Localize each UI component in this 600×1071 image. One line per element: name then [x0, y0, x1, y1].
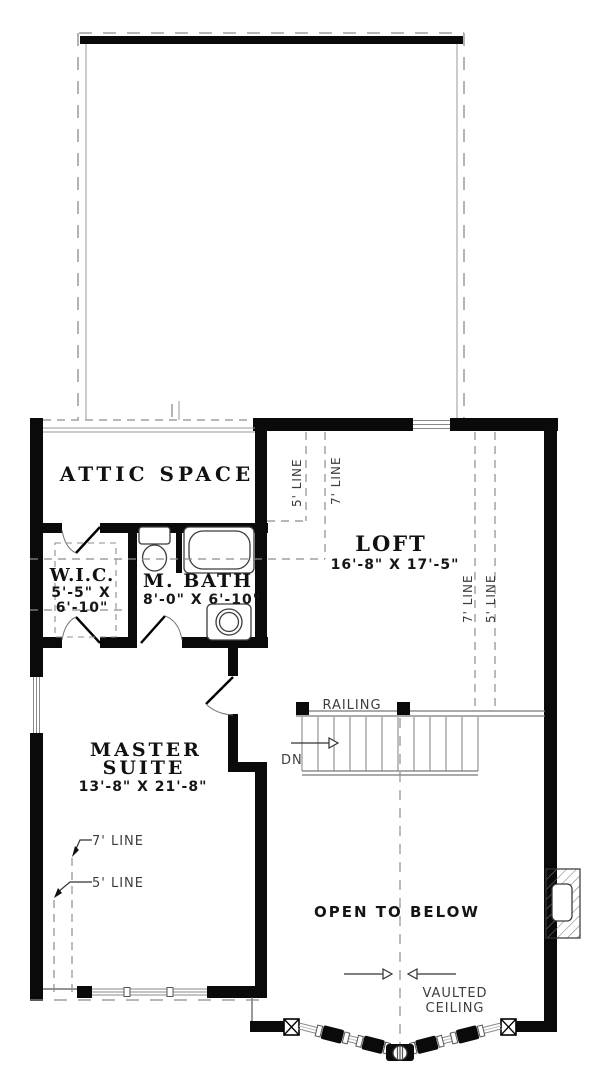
toilet-bowl: [143, 545, 167, 571]
fireplace: [546, 869, 580, 938]
five-line-label-loft-left: 5' LINE: [290, 458, 304, 507]
x-post: [284, 1019, 299, 1035]
prow-glass-left: [297, 1019, 394, 1056]
loft-top-window: [413, 418, 450, 431]
floor-plan-page: ATTIC SPACE W.I.C. 5'-5" X 6'-10" M. BAT…: [0, 0, 600, 1071]
bathtub-inner: [189, 531, 250, 569]
roof-outline: [78, 33, 464, 420]
exterior-walls: [30, 418, 558, 1032]
room-label-master-suite-2: SUITE: [103, 757, 186, 779]
room-label-loft: LOFT: [355, 531, 427, 556]
wic-dimensions-1: 5'-5" X: [51, 585, 111, 601]
seven-line-label-loft-left: 7' LINE: [329, 456, 343, 505]
seven-line-label-master: 7' LINE: [92, 834, 144, 849]
floor-plan-drawing: ATTIC SPACE W.I.C. 5'-5" X 6'-10" M. BAT…: [0, 0, 600, 1071]
master-bath-dimensions: 8'-0" X 6'-10": [143, 592, 261, 608]
railing-post: [397, 702, 410, 715]
interior-walls: [30, 418, 268, 997]
prow-center-post: [386, 1044, 414, 1061]
toilet-tank: [139, 527, 170, 544]
line-leaders: [54, 840, 92, 898]
room-label-wic: W.I.C.: [49, 565, 115, 586]
master-left-window: [30, 677, 43, 733]
vaulted-ceiling-label-1: VAULTED: [422, 986, 487, 1001]
seven-line-label-loft-right: 7' LINE: [461, 574, 475, 623]
x-post: [501, 1019, 516, 1035]
five-line-label-master: 5' LINE: [92, 876, 144, 891]
master-bottom-window: [92, 986, 207, 998]
down-label: DN: [281, 753, 303, 768]
railing-label: RAILING: [322, 698, 381, 713]
loft-dimensions: 16'-8" X 17'-5": [331, 557, 460, 573]
five-line-label-loft-right: 5' LINE: [484, 574, 498, 623]
wic-dimensions-2: 6'-10": [56, 600, 109, 616]
railing-post: [296, 702, 309, 715]
fireplace-flue: [552, 884, 572, 921]
vaulted-ceiling-label-2: CEILING: [426, 1001, 485, 1016]
prow-glass-right: [405, 1019, 502, 1056]
open-to-below-label: OPEN TO BELOW: [314, 903, 480, 921]
room-label-attic: ATTIC SPACE: [59, 462, 254, 486]
master-suite-dimensions: 13'-8" X 21'-8": [79, 779, 208, 795]
room-label-master-bath: M. BATH: [143, 570, 253, 592]
